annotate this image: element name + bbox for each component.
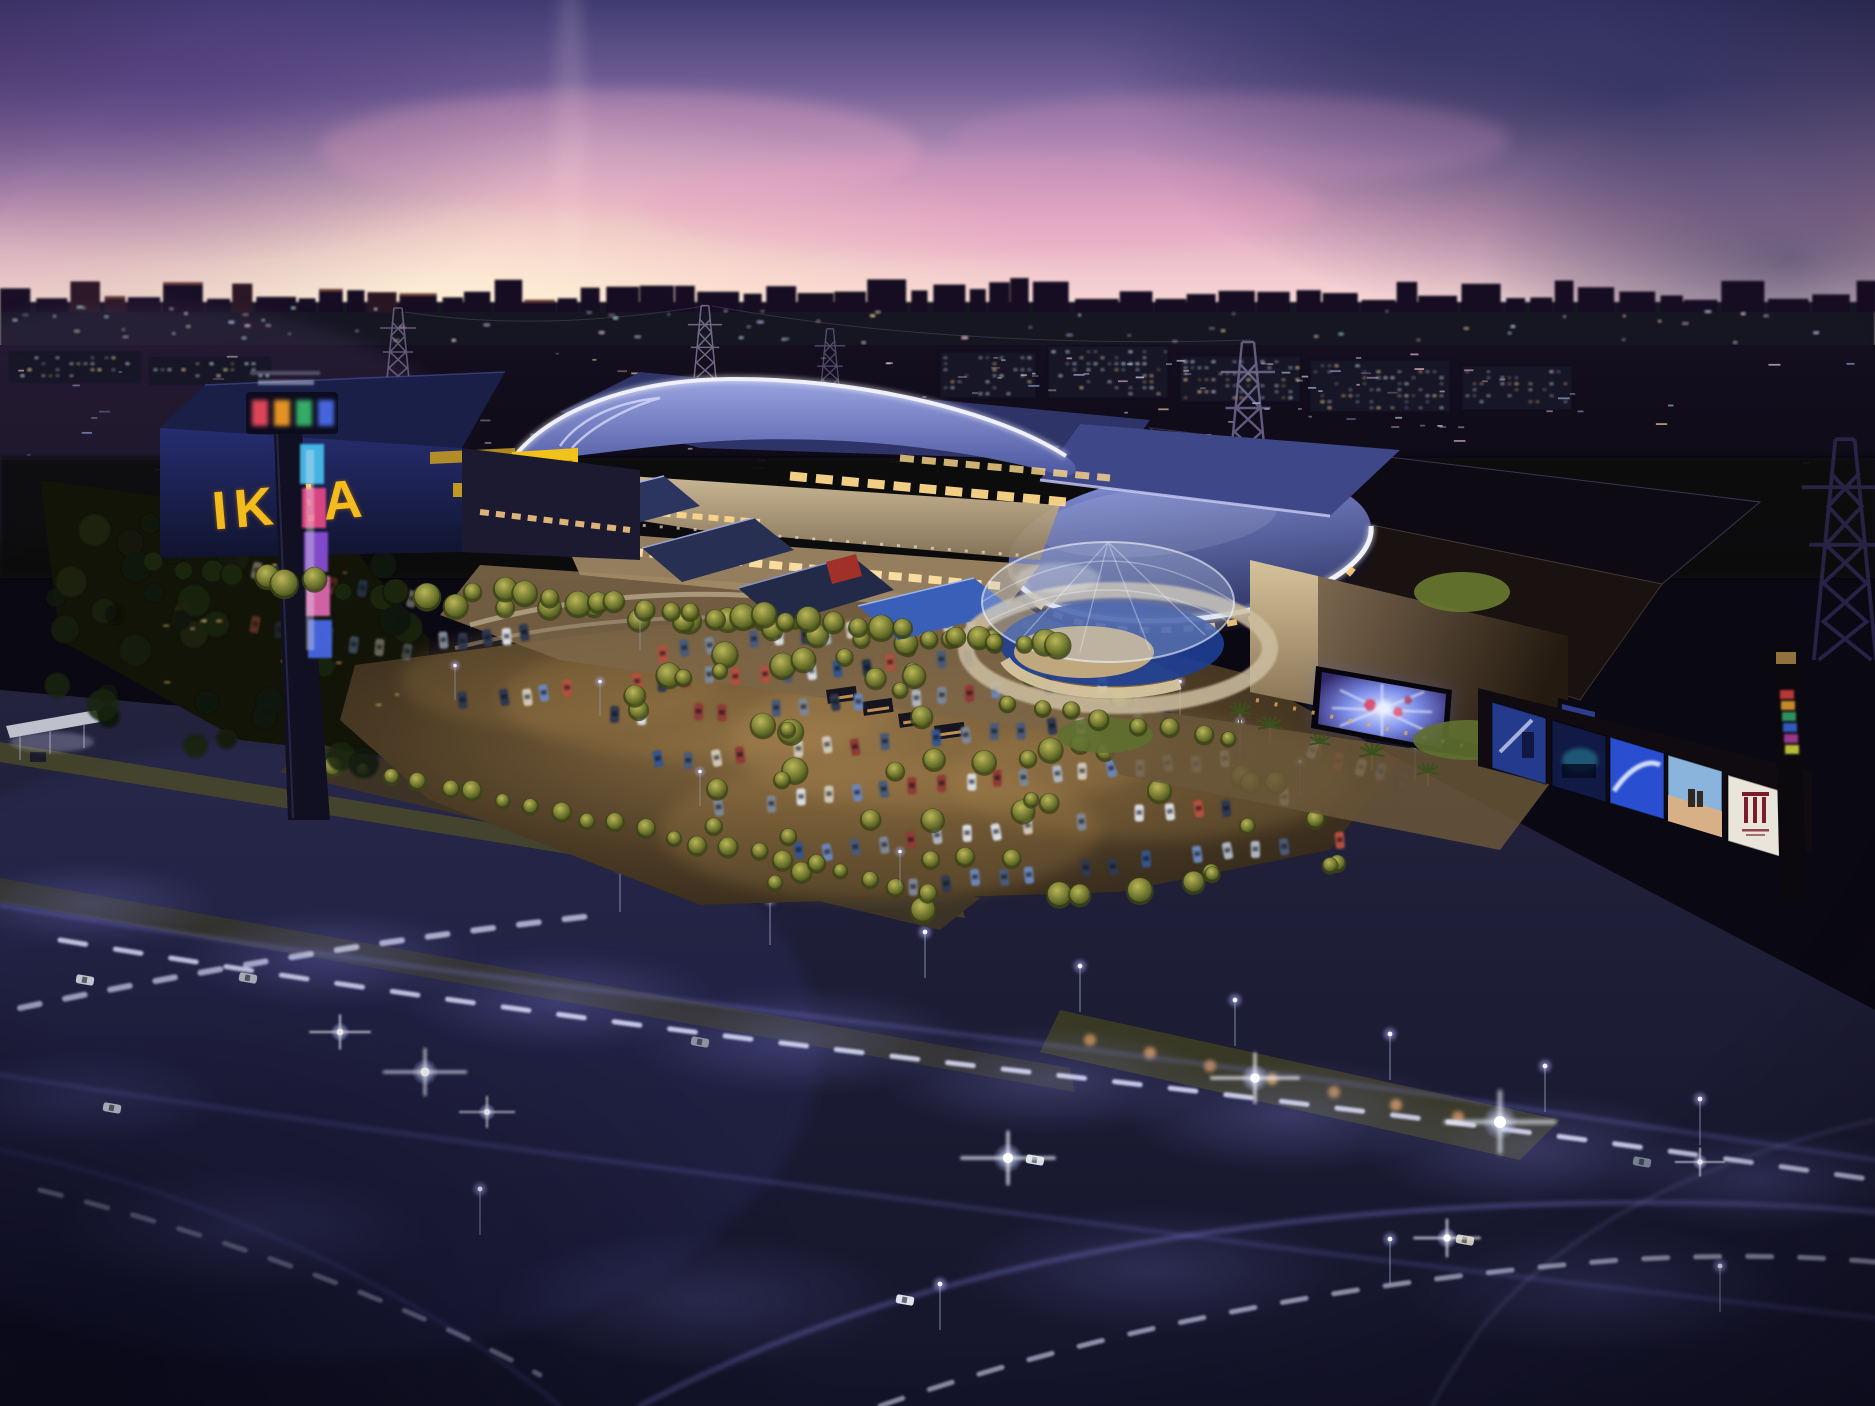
rendering-canvas: IKEA IKEA [0, 0, 1875, 1406]
scene-illustration: IKEA IKEA [0, 0, 1875, 1406]
vignette [0, 0, 1875, 1406]
